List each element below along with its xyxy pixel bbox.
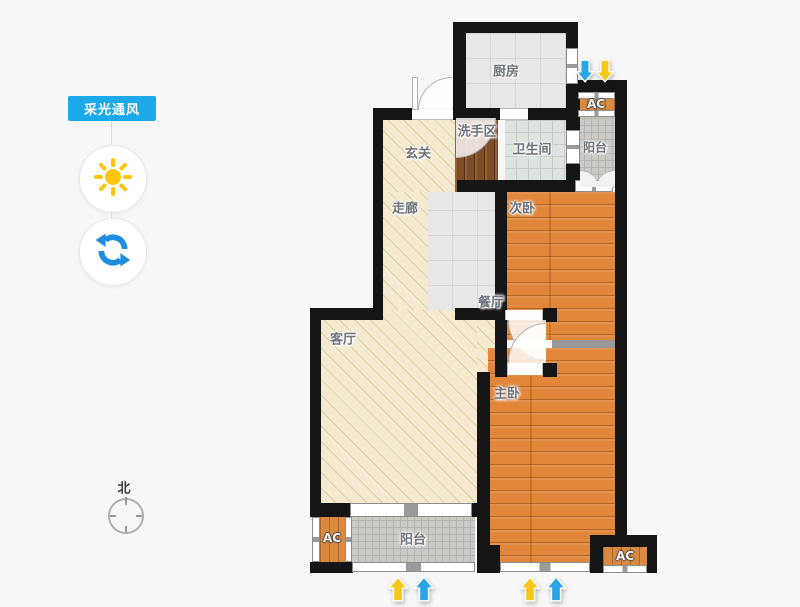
- wind-arrow-up-icon: [413, 575, 435, 607]
- light-arrow-up-icon: [387, 575, 409, 607]
- wall: [615, 80, 627, 547]
- corridor-label: 走廊: [392, 198, 418, 217]
- wall: [647, 535, 657, 573]
- bathroom-window: [566, 130, 580, 164]
- master-bedroom-floor: [488, 348, 615, 562]
- ac-side-window: [345, 517, 352, 562]
- bathroom-label: 卫生间: [512, 139, 551, 158]
- partition-wall: [552, 340, 615, 348]
- door-opening: [505, 310, 543, 320]
- wall: [477, 545, 500, 573]
- balcony-bottom-label: 阳台: [400, 529, 426, 548]
- ac-bottom-right-label: AC: [616, 549, 634, 563]
- entry-label: 玄关: [405, 143, 431, 162]
- ac-side-window: [312, 517, 320, 562]
- wash-area-label: 洗手区: [457, 121, 496, 140]
- entry-door-leaf: [412, 77, 418, 110]
- wall: [457, 180, 575, 192]
- entry-door-arc: [418, 77, 452, 110]
- wall: [310, 562, 353, 573]
- bathroom-door-opening: [500, 108, 528, 120]
- wind-arrow-down-icon: [575, 56, 595, 90]
- dining-label: 餐厅: [478, 292, 504, 311]
- kitchen-label: 厨房: [493, 61, 519, 80]
- ac-bottom-left-label: AC: [323, 531, 341, 545]
- ac-top-window: [578, 110, 615, 117]
- ac-top-right-label: AC: [587, 97, 605, 111]
- balcony-bottom-window: [352, 562, 475, 572]
- ac-bottom-window: [603, 565, 647, 573]
- master-bedroom-window: [500, 562, 590, 572]
- balcony-top-label: 阳台: [583, 139, 607, 156]
- wall: [543, 363, 557, 377]
- light-arrow-up-icon: [519, 575, 541, 607]
- master-bedroom-label: 主卧: [494, 383, 520, 402]
- living-balcony-sliding-door: [350, 503, 472, 517]
- wall: [310, 503, 351, 517]
- wall: [590, 535, 603, 573]
- living-label: 客厅: [330, 329, 356, 348]
- light-arrow-down-icon: [595, 56, 615, 90]
- wall: [453, 22, 577, 33]
- door-opening: [507, 363, 543, 375]
- wall: [453, 22, 466, 120]
- wind-arrow-up-icon: [545, 575, 567, 607]
- second-bedroom-label: 次卧: [509, 198, 535, 217]
- floor-plan: 厨房 洗手区 卫生间 阳台 玄关 走廊 次卧 餐厅 客厅 主卧 阳台 AC AC…: [0, 0, 800, 600]
- wall: [477, 372, 490, 562]
- wall: [566, 22, 578, 48]
- wall: [528, 108, 577, 120]
- wall: [373, 108, 383, 320]
- wall: [310, 308, 321, 517]
